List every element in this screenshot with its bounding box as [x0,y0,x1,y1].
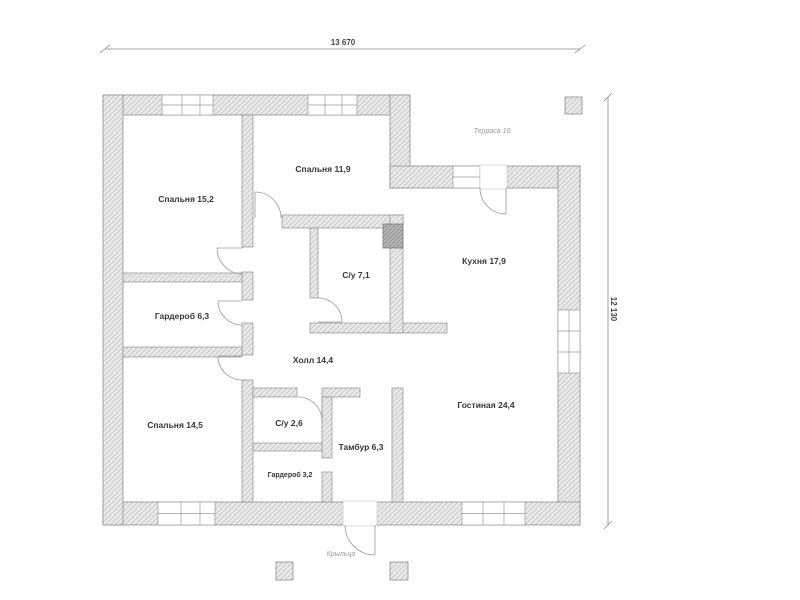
window-bedroom2-top [308,95,357,115]
wall-spine-c [242,323,253,355]
room-label-bedroom-1: Спальня 15,2 [158,194,214,204]
entry-door-gap [343,501,377,526]
terrace-label: Терраса 10 [474,128,511,135]
room-label-bathroom-1: С/у 7,1 [342,270,370,280]
wall-hall-south-b [322,388,360,397]
wall-bedroom1-wardrobe1 [123,273,242,282]
door-bedroom2 [255,192,281,218]
wall-livingroom-left [392,388,403,502]
wall-spine-a [242,115,253,247]
wall-top [103,95,410,115]
dimension-top: 13 670 [100,38,585,53]
wall-spine-d [242,380,253,502]
porch-column-right [390,562,408,580]
window-bedroom1-top [162,95,213,115]
wall-wardrobe1-bedroom3 [123,347,242,357]
floor-plan: 13 670 12 130 Спальня 15,2 Спальня 11,9 … [0,0,800,600]
wall-hall-south-a [253,388,297,397]
room-label-vestibule: Тамбур 6,3 [338,442,383,452]
windows [158,95,580,525]
room-label-living-room: Гостиная 24,4 [457,400,515,410]
door-bathroom1 [318,298,342,322]
room-label-wardrobe-2: Гардероб 3,2 [268,471,313,479]
wall-bathroom1-left [310,228,318,298]
door-kitchen-terrace [480,188,506,214]
window-right [558,310,580,373]
door-wardrobe1 [218,301,242,325]
room-label-kitchen: Кухня 17,9 [462,256,506,266]
wall-left [103,95,123,525]
window-bedroom3-bottom [158,502,215,525]
dimension-right-label: 12 130 [609,297,618,322]
terrace-column [565,97,582,114]
wall-bathroom2-wardrobe2 [253,443,322,451]
room-label-bedroom-2: Спальня 11,9 [295,164,350,174]
door-bedroom1 [217,248,243,274]
porch-column-left [276,562,293,580]
dimension-top-label: 13 670 [331,38,356,47]
wall-vestibule-left-b [322,472,332,502]
window-livingroom-bottom [462,502,525,525]
porch-label: Крыльцо [327,551,356,558]
wall-vestibule-left-a [322,397,332,458]
door-bedroom3 [218,356,242,380]
door-swings [217,188,506,555]
floor-plan-canvas: 13 670 12 130 Спальня 15,2 Спальня 11,9 … [0,0,800,600]
wall-peninsula [310,323,447,333]
room-label-bathroom-2: С/у 2,6 [275,418,303,428]
room-label-wardrobe-1: Гардероб 6,3 [155,311,210,321]
outdoor-labels: Терраса 10 Крыльцо [327,128,511,558]
outer-walls [103,95,580,525]
window-kitchen-top [453,166,480,188]
room-label-bedroom-3: Спальня 14,5 [147,420,203,430]
room-label-hall: Холл 14,4 [293,355,334,365]
kitchen-terrace-door-gap [480,165,507,189]
dimension-right: 12 130 [604,93,618,529]
vent-shaft [383,224,403,248]
wall-spine-b [242,272,253,300]
